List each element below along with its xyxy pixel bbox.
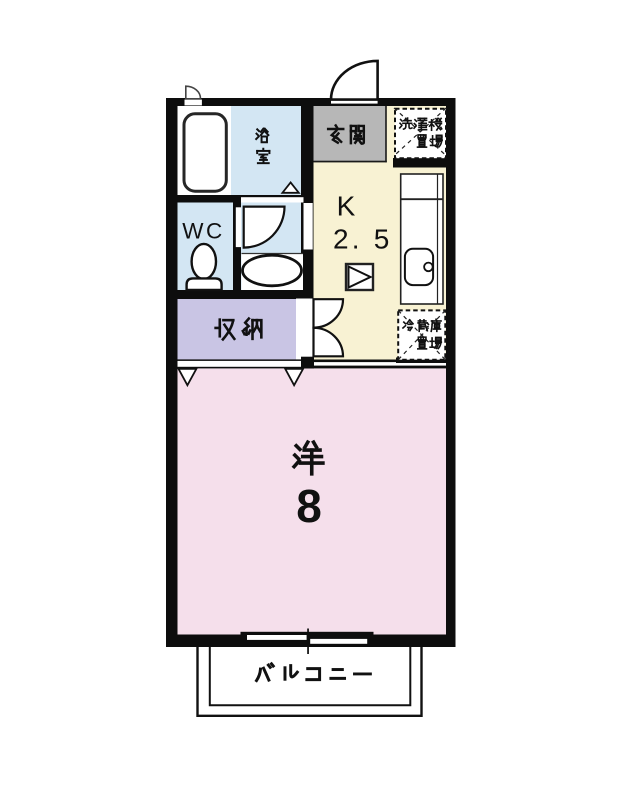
svg-text:8: 8 [296, 480, 322, 532]
svg-text:K: K [337, 191, 356, 222]
svg-text:2. 5: 2. 5 [333, 224, 393, 255]
svg-text:WC: WC [182, 218, 225, 243]
